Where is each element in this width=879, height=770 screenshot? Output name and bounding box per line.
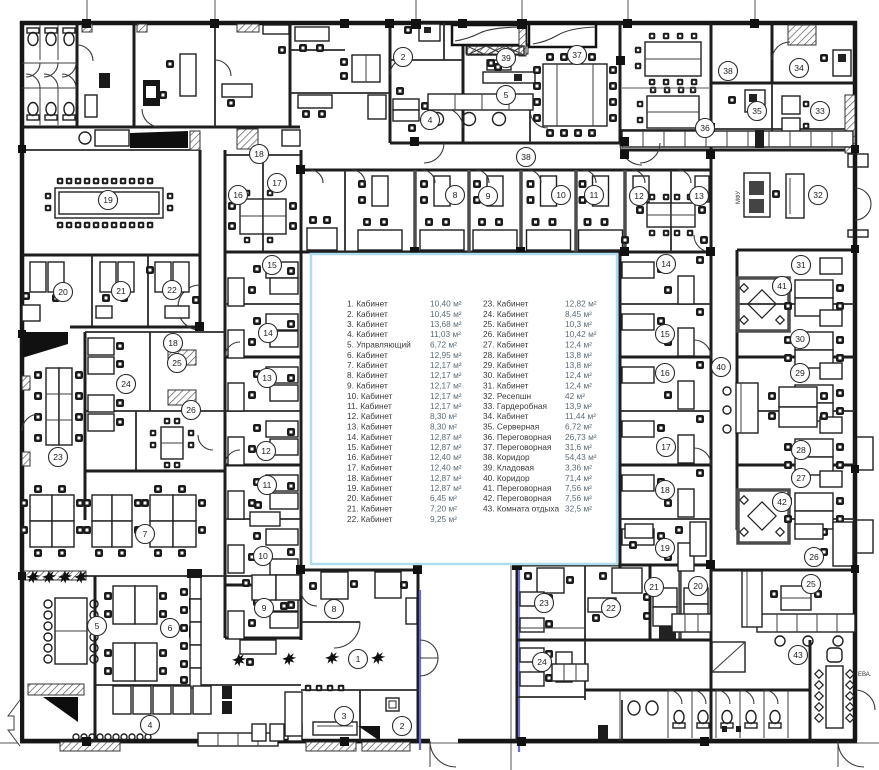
svg-text:9,25 м²: 9,25 м²: [430, 514, 457, 524]
svg-text:7,56 м²: 7,56 м²: [565, 493, 592, 503]
svg-text:12. Кабинет: 12. Кабинет: [347, 411, 393, 421]
svg-text:71,4 м²: 71,4 м²: [565, 473, 592, 483]
svg-text:12,17 м²: 12,17 м²: [430, 370, 462, 380]
svg-text:18: 18: [254, 149, 264, 159]
svg-text:33. Гардеробная: 33. Гардеробная: [483, 401, 547, 411]
svg-text:7. Кабинет: 7. Кабинет: [347, 360, 388, 370]
svg-text:36. Переговорная: 36. Переговорная: [483, 432, 551, 442]
svg-text:40. Коридор: 40. Коридор: [483, 473, 530, 483]
svg-text:7,56 м²: 7,56 м²: [565, 483, 592, 493]
svg-text:37. Переговорная: 37. Переговорная: [483, 442, 551, 452]
svg-text:9. Кабинет: 9. Кабинет: [347, 381, 388, 391]
svg-text:29. Кабинет: 29. Кабинет: [483, 360, 529, 370]
svg-text:21. Кабинет: 21. Кабинет: [347, 504, 393, 514]
svg-text:42 м²: 42 м²: [565, 391, 585, 401]
svg-text:13,68 м²: 13,68 м²: [430, 319, 462, 329]
svg-text:13,8 м²: 13,8 м²: [565, 360, 592, 370]
svg-text:26: 26: [186, 405, 196, 415]
svg-text:34. Кабинет: 34. Кабинет: [483, 411, 529, 421]
svg-text:5. Управляющий: 5. Управляющий: [347, 340, 411, 350]
svg-text:11. Кабинет: 11. Кабинет: [347, 401, 392, 411]
svg-text:32. Ресепшн: 32. Ресепшн: [483, 391, 531, 401]
svg-text:25: 25: [806, 579, 816, 589]
svg-text:28. Кабинет: 28. Кабинет: [483, 350, 529, 360]
svg-text:42. Переговорная: 42. Переговорная: [483, 493, 551, 503]
svg-text:23: 23: [53, 452, 63, 462]
svg-text:10,3 м²: 10,3 м²: [565, 319, 592, 329]
svg-text:24: 24: [121, 379, 131, 389]
svg-text:20: 20: [693, 581, 703, 591]
svg-text:12,40 м²: 12,40 м²: [430, 463, 462, 473]
svg-text:10: 10: [556, 190, 566, 200]
svg-text:12,4 м²: 12,4 м²: [565, 381, 592, 391]
svg-text:12,17 м²: 12,17 м²: [430, 360, 462, 370]
svg-text:19. Кабинет: 19. Кабинет: [347, 483, 393, 493]
svg-text:13: 13: [262, 373, 272, 383]
svg-text:9: 9: [262, 603, 267, 613]
svg-text:38: 38: [521, 152, 531, 162]
svg-text:38: 38: [723, 66, 733, 76]
svg-text:12,4 м²: 12,4 м²: [565, 370, 592, 380]
svg-text:21: 21: [649, 582, 659, 592]
svg-text:14: 14: [661, 259, 671, 269]
svg-text:25: 25: [172, 358, 182, 368]
svg-text:12,87 м²: 12,87 м²: [430, 483, 462, 493]
svg-text:22. Кабинет: 22. Кабинет: [347, 514, 393, 524]
svg-text:35: 35: [752, 106, 762, 116]
svg-text:26. Кабинет: 26. Кабинет: [483, 329, 529, 339]
svg-text:31. Кабинет: 31. Кабинет: [483, 381, 529, 391]
svg-text:13,8 м²: 13,8 м²: [565, 350, 592, 360]
svg-text:12: 12: [634, 191, 644, 201]
svg-text:15. Кабинет: 15. Кабинет: [347, 442, 393, 452]
svg-text:13: 13: [694, 191, 704, 201]
svg-text:18: 18: [660, 485, 670, 495]
svg-text:1. Кабинет: 1. Кабинет: [347, 299, 388, 309]
svg-text:6,72 м²: 6,72 м²: [430, 340, 457, 350]
svg-text:42: 42: [777, 497, 787, 507]
svg-text:33: 33: [815, 106, 825, 116]
svg-text:23. Кабинет: 23. Кабинет: [483, 299, 529, 309]
svg-text:34: 34: [794, 63, 804, 73]
svg-text:21: 21: [116, 286, 126, 296]
svg-text:39: 39: [501, 53, 511, 63]
svg-text:41. Переговорная: 41. Переговорная: [483, 483, 551, 493]
svg-text:1: 1: [356, 654, 361, 664]
svg-text:39. Кладовая: 39. Кладовая: [483, 463, 534, 473]
svg-text:2: 2: [401, 52, 406, 62]
svg-text:10,40 м²: 10,40 м²: [430, 299, 462, 309]
svg-text:12,17 м²: 12,17 м²: [430, 391, 462, 401]
svg-text:8,30 м²: 8,30 м²: [430, 422, 457, 432]
svg-text:54,43 м²: 54,43 м²: [565, 452, 597, 462]
svg-text:11: 11: [263, 480, 272, 490]
svg-text:17: 17: [272, 178, 282, 188]
svg-text:25. Кабинет: 25. Кабинет: [483, 319, 529, 329]
svg-text:16: 16: [660, 368, 670, 378]
svg-text:30: 30: [795, 334, 805, 344]
svg-text:5: 5: [95, 621, 100, 631]
svg-text:13. Кабинет: 13. Кабинет: [347, 422, 393, 432]
svg-text:31: 31: [796, 260, 806, 270]
svg-text:14. Кабинет: 14. Кабинет: [347, 432, 393, 442]
svg-text:19: 19: [103, 195, 113, 205]
svg-text:3. Кабинет: 3. Кабинет: [347, 319, 388, 329]
svg-text:4: 4: [428, 115, 433, 125]
svg-text:32,5 м²: 32,5 м²: [565, 504, 592, 514]
svg-text:2. Кабинет: 2. Кабинет: [347, 309, 388, 319]
svg-text:4. Кабинет: 4. Кабинет: [347, 329, 388, 339]
svg-text:18: 18: [168, 338, 178, 348]
svg-text:20. Кабинет: 20. Кабинет: [347, 493, 393, 503]
svg-text:8. Кабинет: 8. Кабинет: [347, 370, 388, 380]
svg-text:35. Серверная: 35. Серверная: [483, 422, 539, 432]
svg-text:14: 14: [263, 328, 273, 338]
svg-text:9: 9: [486, 191, 491, 201]
svg-text:15: 15: [267, 260, 277, 270]
svg-text:16. Кабинет: 16. Кабинет: [347, 452, 393, 462]
svg-text:8: 8: [453, 190, 458, 200]
svg-text:18. Кабинет: 18. Кабинет: [347, 473, 393, 483]
svg-text:17: 17: [661, 442, 671, 452]
svg-text:13,9 м²: 13,9 м²: [565, 401, 592, 411]
svg-text:12,17 м²: 12,17 м²: [430, 401, 462, 411]
svg-text:6. Кабинет: 6. Кабинет: [347, 350, 388, 360]
svg-text:37: 37: [572, 50, 582, 60]
svg-text:МФУ: МФУ: [736, 191, 742, 204]
svg-text:7: 7: [143, 529, 148, 539]
svg-text:43: 43: [793, 650, 803, 660]
svg-text:8,45 м²: 8,45 м²: [565, 309, 592, 319]
svg-text:3: 3: [342, 711, 347, 721]
svg-text:15: 15: [660, 329, 670, 339]
svg-text:16: 16: [233, 190, 243, 200]
svg-text:12,87 м²: 12,87 м²: [430, 442, 462, 452]
svg-text:6,72 м²: 6,72 м²: [565, 422, 592, 432]
svg-text:11,44 м²: 11,44 м²: [565, 411, 596, 421]
svg-text:11: 11: [590, 190, 599, 200]
svg-text:3,36 м²: 3,36 м²: [565, 463, 592, 473]
svg-text:6,45 м²: 6,45 м²: [430, 493, 457, 503]
svg-text:22: 22: [167, 285, 177, 295]
svg-text:12,4 м²: 12,4 м²: [565, 340, 592, 350]
svg-text:12,82 м²: 12,82 м²: [565, 299, 597, 309]
svg-text:5: 5: [504, 90, 509, 100]
svg-text:17. Кабинет: 17. Кабинет: [347, 463, 393, 473]
svg-text:43. Комната отдыха: 43. Комната отдыха: [483, 504, 559, 514]
svg-text:2: 2: [400, 721, 405, 731]
svg-text:20: 20: [58, 287, 68, 297]
svg-text:10. Кабинет: 10. Кабинет: [347, 391, 393, 401]
svg-text:30. Кабинет: 30. Кабинет: [483, 370, 529, 380]
svg-text:22: 22: [606, 603, 616, 613]
svg-text:12,95 м²: 12,95 м²: [430, 350, 462, 360]
svg-text:10: 10: [258, 551, 268, 561]
svg-text:23: 23: [539, 598, 549, 608]
svg-text:8: 8: [332, 604, 337, 614]
svg-text:12,40 м²: 12,40 м²: [430, 452, 462, 462]
svg-text:41: 41: [777, 281, 787, 291]
svg-text:28: 28: [796, 445, 806, 455]
svg-text:40: 40: [716, 362, 726, 372]
svg-text:26: 26: [809, 552, 819, 562]
svg-text:32: 32: [813, 190, 823, 200]
svg-text:6: 6: [168, 623, 173, 633]
svg-text:12,87 м²: 12,87 м²: [430, 473, 462, 483]
svg-text:ЕВА.: ЕВА.: [858, 672, 872, 678]
svg-text:8,30 м²: 8,30 м²: [430, 411, 457, 421]
svg-text:7,20 м²: 7,20 м²: [430, 504, 457, 514]
svg-text:24. Кабинет: 24. Кабинет: [483, 309, 529, 319]
svg-text:10,45 м²: 10,45 м²: [430, 309, 462, 319]
svg-text:24: 24: [537, 657, 547, 667]
svg-text:27: 27: [796, 473, 806, 483]
svg-text:4: 4: [148, 720, 153, 730]
svg-text:36: 36: [700, 123, 710, 133]
svg-text:27. Кабинет: 27. Кабинет: [483, 340, 529, 350]
svg-text:26,73 м²: 26,73 м²: [565, 432, 597, 442]
svg-text:31,6 м²: 31,6 м²: [565, 442, 592, 452]
svg-text:12: 12: [261, 446, 271, 456]
svg-text:29: 29: [795, 368, 805, 378]
svg-text:12,87 м²: 12,87 м²: [430, 432, 462, 442]
svg-text:12,17 м²: 12,17 м²: [430, 381, 462, 391]
svg-text:11,03 м²: 11,03 м²: [430, 329, 461, 339]
svg-text:19: 19: [660, 543, 670, 553]
svg-text:38. Коридор: 38. Коридор: [483, 452, 530, 462]
svg-text:10,42 м²: 10,42 м²: [565, 329, 597, 339]
